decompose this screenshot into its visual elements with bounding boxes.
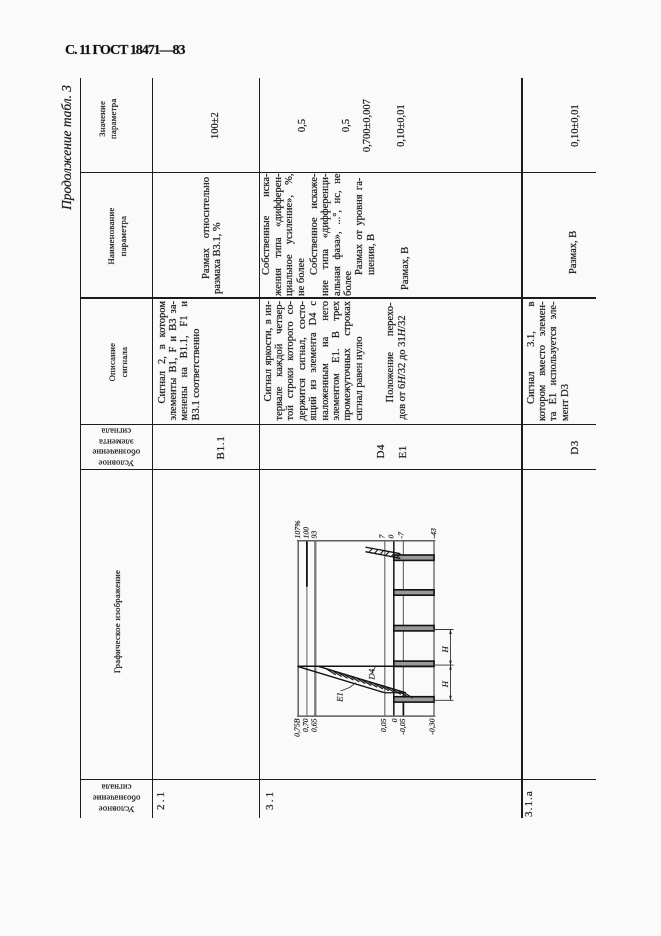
svg-text:H: H [440, 681, 450, 689]
svg-text:H: H [440, 646, 450, 654]
svg-text:-0,30: -0,30 [427, 719, 436, 735]
svg-text:-43: -43 [429, 529, 438, 539]
svg-text:7: 7 [377, 534, 386, 539]
svg-text:Е1: Е1 [334, 693, 344, 704]
svg-text:0,05: 0,05 [379, 719, 388, 733]
svg-text:0,65: 0,65 [309, 719, 318, 733]
svg-text:93: 93 [309, 531, 318, 539]
svg-text:-7: -7 [396, 531, 405, 539]
svg-text:D4: D4 [366, 669, 376, 681]
svg-text:-0,05: -0,05 [398, 719, 407, 735]
svg-text:0: 0 [386, 535, 395, 539]
